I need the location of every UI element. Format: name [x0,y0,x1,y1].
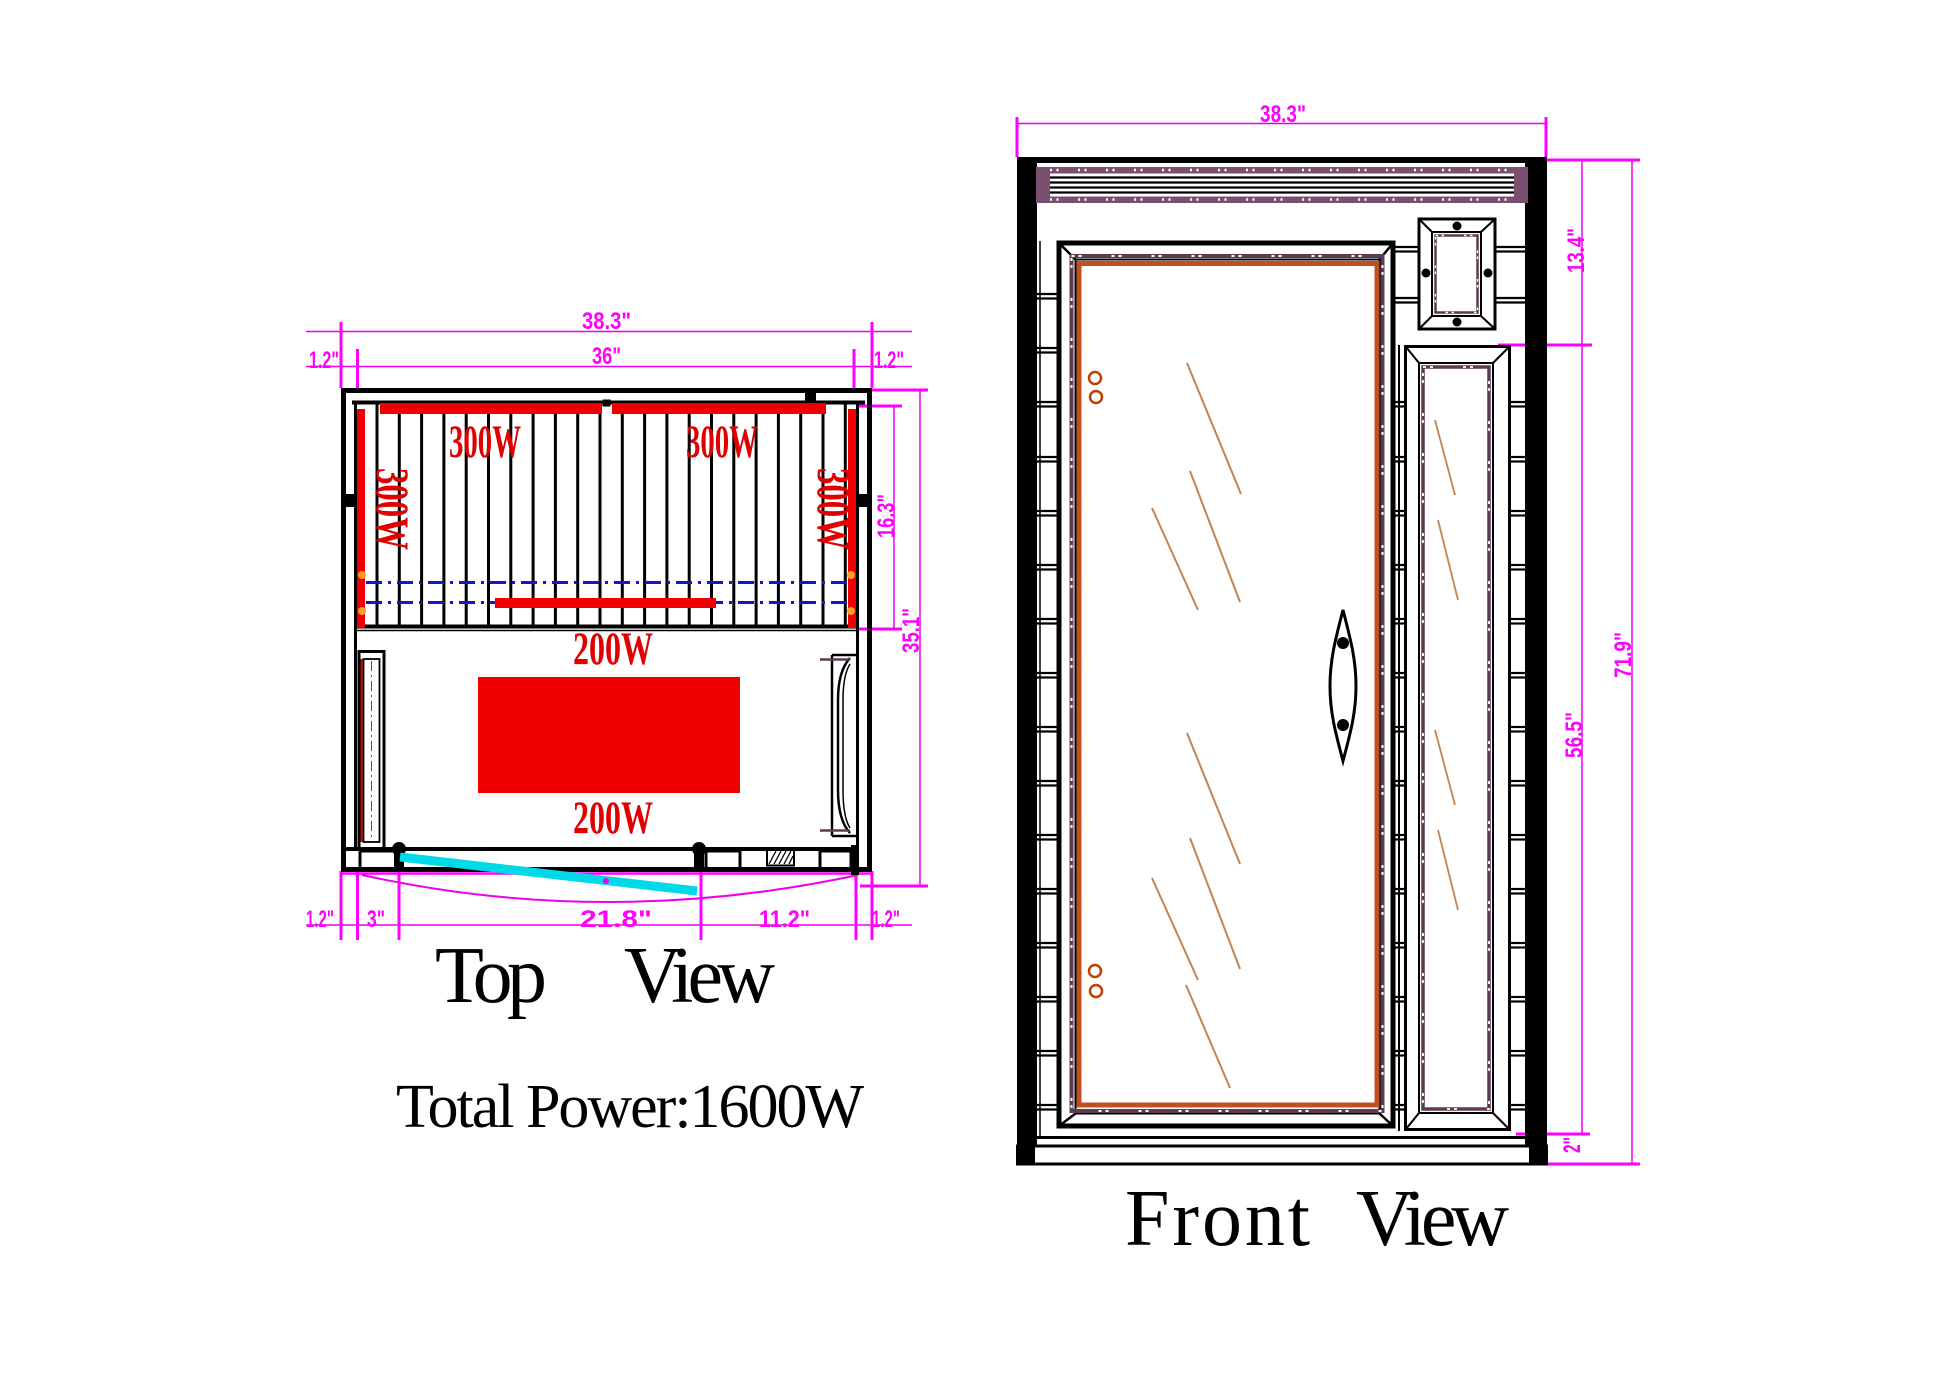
svg-text:1.2": 1.2" [872,906,900,933]
svg-text:View: View [624,932,775,1020]
svg-text:16.3": 16.3" [873,494,900,538]
svg-text:200W: 200W [573,792,653,844]
svg-text:300W: 300W [686,416,758,468]
svg-text:13.4": 13.4" [1563,228,1590,273]
svg-text:View: View [1356,1175,1509,1263]
svg-text:56.5": 56.5" [1561,712,1588,758]
svg-text:1.2": 1.2" [874,347,904,374]
svg-text:35.1": 35.1" [898,608,925,653]
svg-text:3": 3" [367,906,385,933]
svg-text:Front: Front [1125,1175,1310,1263]
svg-text:11.2": 11.2" [759,906,810,933]
svg-text:36": 36" [592,343,621,370]
svg-text:Total Power:1600W: Total Power:1600W [396,1073,864,1141]
svg-text:Top: Top [435,932,547,1020]
svg-text:200W: 200W [573,623,653,675]
svg-text:1.2": 1.2" [306,906,334,933]
svg-text:300W: 300W [807,468,859,550]
svg-text:2": 2" [1559,1137,1586,1153]
svg-text:300W: 300W [366,468,418,550]
svg-text:21.8": 21.8" [580,906,652,933]
svg-text:300W: 300W [449,416,521,468]
svg-text:1.2": 1.2" [309,347,339,374]
svg-text:71.9": 71.9" [1610,632,1637,678]
svg-text:38.3": 38.3" [1260,101,1306,128]
svg-text:38.3": 38.3" [582,308,631,335]
